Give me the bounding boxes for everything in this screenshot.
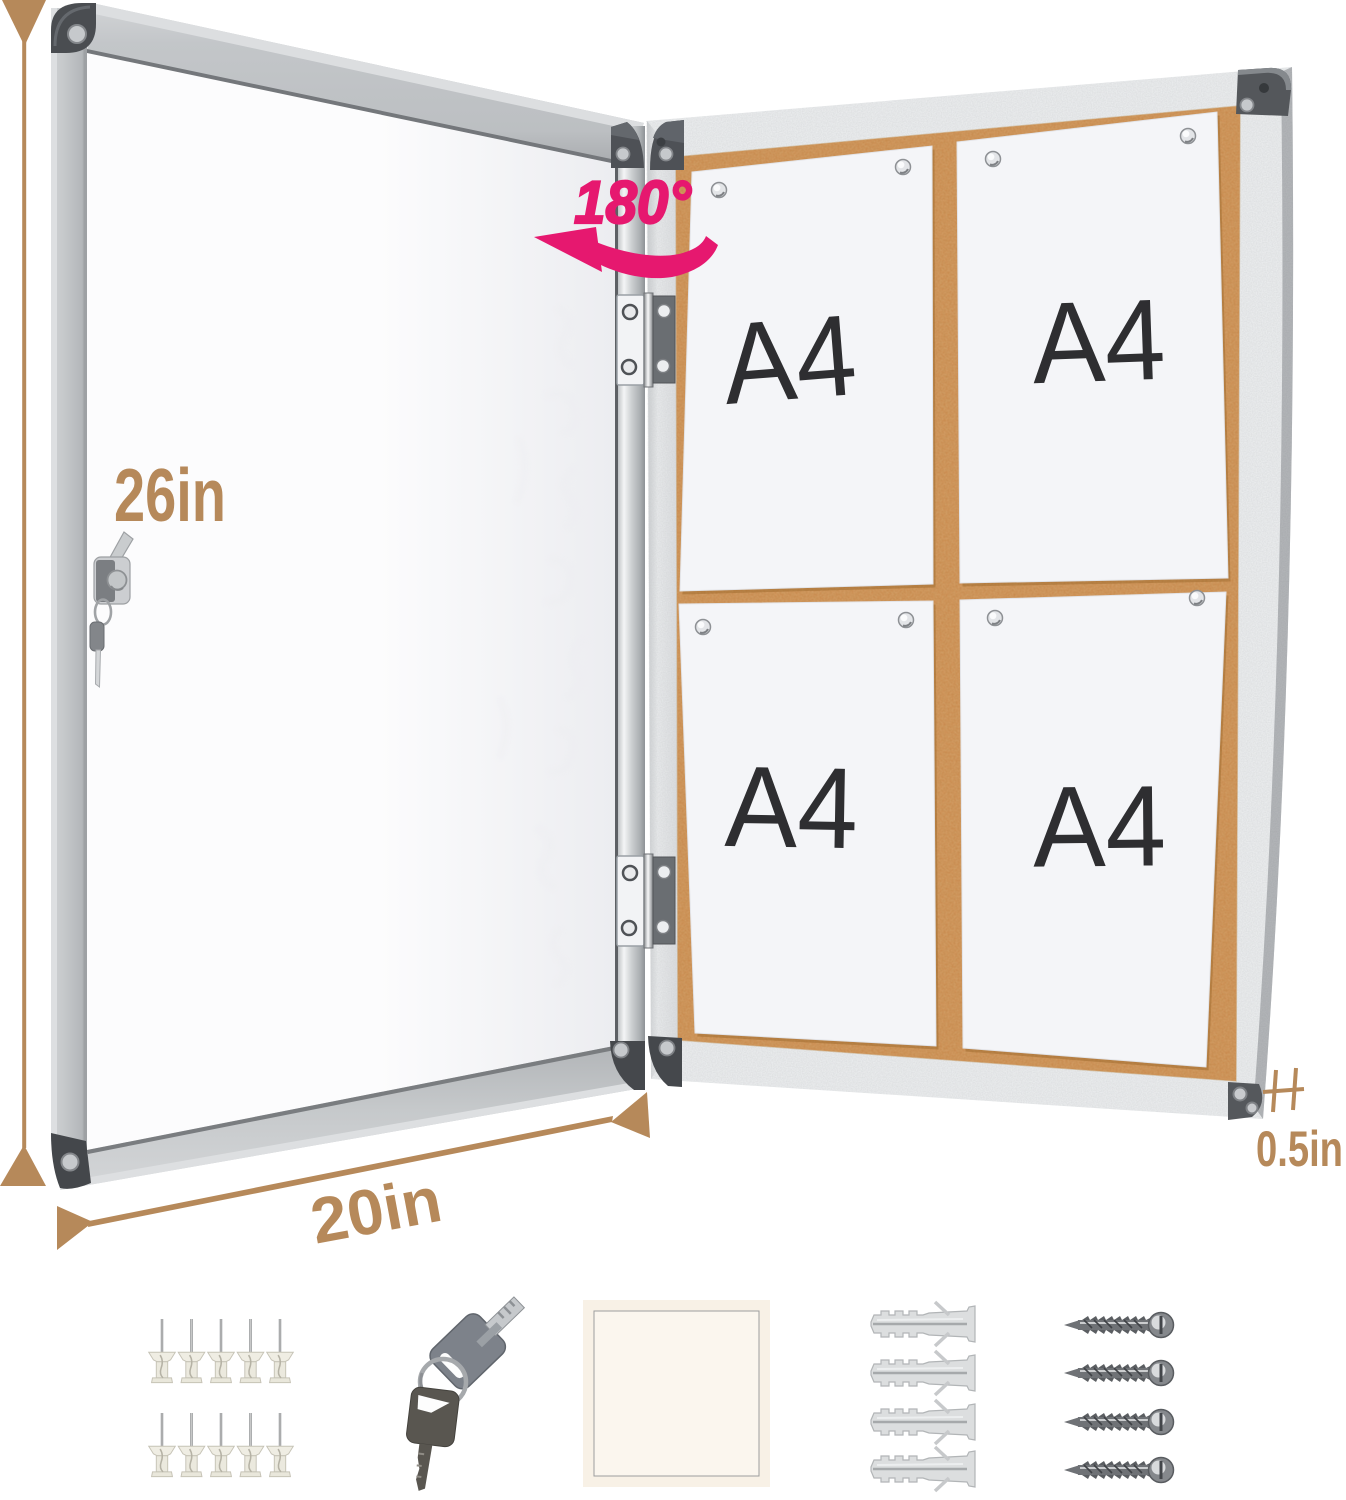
svg-text:26in: 26in <box>114 453 226 537</box>
svg-text:A4: A4 <box>724 743 859 873</box>
svg-text:A4: A4 <box>718 291 861 429</box>
svg-text:180°: 180° <box>574 169 692 236</box>
svg-text:0.5in: 0.5in <box>1256 1121 1343 1177</box>
svg-text:A4: A4 <box>1030 276 1167 409</box>
svg-text:A4: A4 <box>1032 762 1166 891</box>
